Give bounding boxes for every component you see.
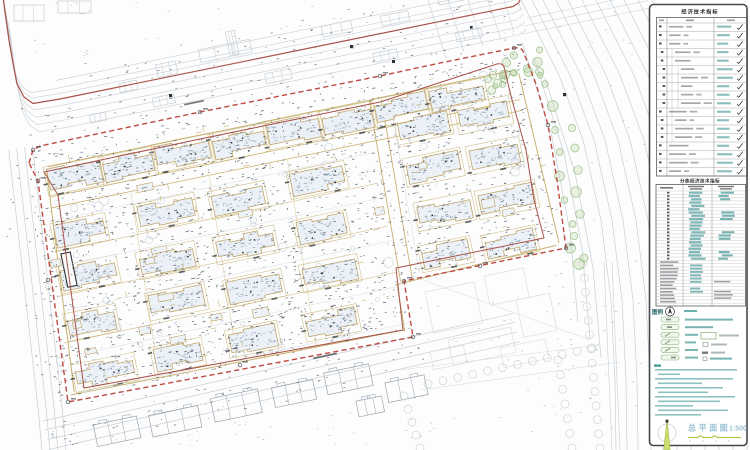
svg-text:经济技术指标: 经济技术指标 (681, 8, 718, 16)
svg-text:图例: 图例 (652, 308, 664, 316)
svg-text:总平面图: 总平面图 (688, 423, 730, 433)
svg-text:分栋经济技术指标: 分栋经济技术指标 (680, 178, 720, 185)
svg-text:1:500: 1:500 (729, 426, 747, 433)
